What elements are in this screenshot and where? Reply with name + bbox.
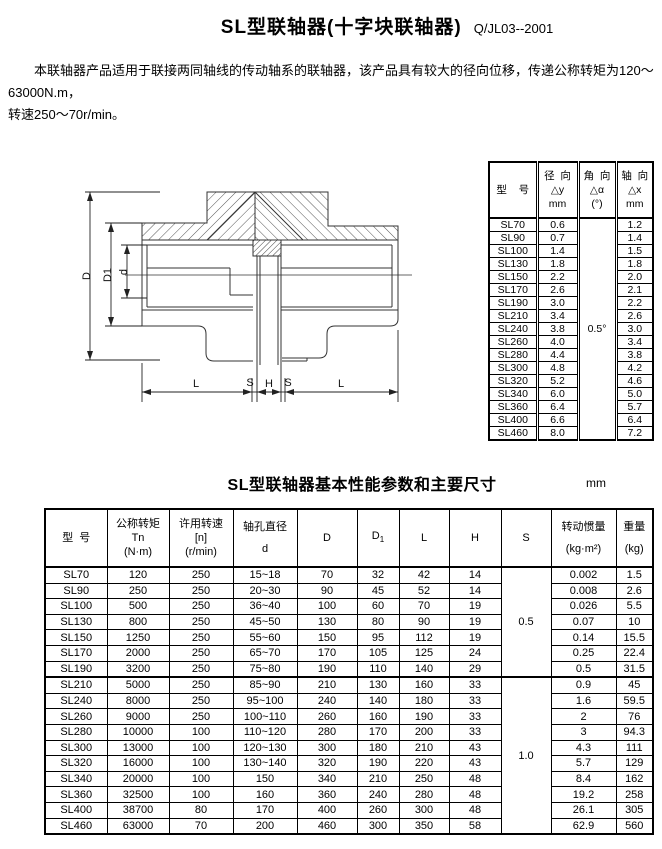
cell-bore: 75~80 [233, 661, 297, 677]
cell-bore: 36~40 [233, 599, 297, 615]
dim-label-S-right: S [284, 377, 291, 389]
cell-model: SL260 [45, 709, 107, 725]
performance-row: SL13080025045~501308090190.0710 [45, 614, 653, 630]
cell-L: 200 [399, 724, 449, 740]
cell-L: 70 [399, 599, 449, 615]
performance-row: SL34020000100150340210250488.4162 [45, 771, 653, 787]
misalignment-row: SL2103.42.6 [489, 310, 653, 323]
cell-L: 112 [399, 630, 449, 646]
cell-speed: 100 [169, 756, 233, 772]
cell-radial: 3.4 [537, 310, 578, 323]
cell-model: SL280 [45, 724, 107, 740]
cell-inertia: 2 [551, 709, 616, 725]
misalignment-table: 型 号 径 向 △y mm 角 向 △α (°) 轴 向 △x mm SL700… [488, 161, 654, 441]
cell-inertia: 3 [551, 724, 616, 740]
col-header-S: S [501, 509, 551, 567]
col-header-H: H [449, 509, 501, 567]
cell-model: SL320 [489, 375, 537, 388]
cell-inertia: 0.002 [551, 567, 616, 583]
performance-row: SL360325001001603602402804819.2258 [45, 787, 653, 803]
cell-torque: 32500 [107, 787, 169, 803]
cell-axial: 3.8 [616, 349, 653, 362]
cell-weight: 129 [616, 756, 653, 772]
cell-H: 19 [449, 630, 501, 646]
misalignment-row: SL2804.43.8 [489, 349, 653, 362]
cell-D1: 130 [357, 677, 399, 693]
cell-speed: 100 [169, 740, 233, 756]
col-header-model2: 型 号 [45, 509, 107, 567]
cell-L: 140 [399, 661, 449, 677]
cell-torque: 16000 [107, 756, 169, 772]
col-header-radial: 径 向 △y mm [537, 162, 578, 218]
cell-inertia: 4.3 [551, 740, 616, 756]
cell-L: 250 [399, 771, 449, 787]
cell-D1: 210 [357, 771, 399, 787]
cell-speed: 250 [169, 583, 233, 599]
cell-radial: 1.8 [537, 258, 578, 271]
misalignment-header-row: 型 号 径 向 △y mm 角 向 △α (°) 轴 向 △x mm [489, 162, 653, 218]
cell-bore: 100~110 [233, 709, 297, 725]
cell-radial: 0.7 [537, 232, 578, 245]
cell-L: 180 [399, 693, 449, 709]
cell-D: 190 [297, 661, 357, 677]
cell-L: 280 [399, 787, 449, 803]
cell-H: 48 [449, 787, 501, 803]
cell-axial: 7.2 [616, 427, 653, 441]
cell-D1: 105 [357, 645, 399, 661]
cell-radial: 1.4 [537, 245, 578, 258]
cell-axial: 3.4 [616, 336, 653, 349]
cell-torque: 13000 [107, 740, 169, 756]
cell-L: 210 [399, 740, 449, 756]
cell-D1: 300 [357, 818, 399, 834]
doc-number: Q/JL03--2001 [474, 21, 554, 36]
cell-L: 90 [399, 614, 449, 630]
cell-H: 58 [449, 818, 501, 834]
misalignment-row: SL700.60.5°1.2 [489, 218, 653, 232]
cell-radial: 0.6 [537, 218, 578, 232]
cell-bore: 170 [233, 802, 297, 818]
cell-model: SL320 [45, 756, 107, 772]
cell-D: 170 [297, 645, 357, 661]
misalignment-row: SL4608.07.2 [489, 427, 653, 441]
cell-speed: 70 [169, 818, 233, 834]
cell-speed: 100 [169, 787, 233, 803]
cell-model: SL300 [489, 362, 537, 375]
cell-radial: 6.4 [537, 401, 578, 414]
cell-speed: 80 [169, 802, 233, 818]
cell-D1: 240 [357, 787, 399, 803]
cell-model: SL300 [45, 740, 107, 756]
cell-S-group: 1.0 [501, 677, 551, 834]
cell-weight: 5.5 [616, 599, 653, 615]
misalignment-row: SL1702.62.1 [489, 284, 653, 297]
cell-bore: 150 [233, 771, 297, 787]
col-header-D: D [297, 509, 357, 567]
cell-inertia: 62.9 [551, 818, 616, 834]
cell-bore: 130~140 [233, 756, 297, 772]
performance-row: SL10050025036~401006070190.0265.5 [45, 599, 653, 615]
cell-H: 33 [449, 677, 501, 693]
misalignment-row: SL3004.84.2 [489, 362, 653, 375]
performance-header-row: 型 号 公称转矩 Tn (N·m) 许用转速 [n] (r/min) 轴孔直径 … [45, 509, 653, 567]
cell-model: SL130 [45, 614, 107, 630]
cell-model: SL400 [489, 414, 537, 427]
cell-axial: 2.2 [616, 297, 653, 310]
cell-axial: 4.6 [616, 375, 653, 388]
cell-model: SL100 [45, 599, 107, 615]
cell-weight: 59.5 [616, 693, 653, 709]
cell-torque: 2000 [107, 645, 169, 661]
cell-model: SL90 [489, 232, 537, 245]
dim-label-L-right: L [338, 378, 344, 390]
cell-H: 33 [449, 709, 501, 725]
cell-model: SL360 [489, 401, 537, 414]
cell-D: 280 [297, 724, 357, 740]
cell-D1: 170 [357, 724, 399, 740]
section-hatched-bodies [142, 192, 398, 256]
cell-H: 33 [449, 693, 501, 709]
cell-model: SL280 [489, 349, 537, 362]
cell-D: 260 [297, 709, 357, 725]
cell-bore: 110~120 [233, 724, 297, 740]
cell-torque: 20000 [107, 771, 169, 787]
cell-inertia: 0.008 [551, 583, 616, 599]
cell-model: SL190 [45, 661, 107, 677]
cell-weight: 111 [616, 740, 653, 756]
cell-bore: 55~60 [233, 630, 297, 646]
performance-row: SL150125025055~6015095112190.1415.5 [45, 630, 653, 646]
cell-torque: 120 [107, 567, 169, 583]
cell-model: SL340 [489, 388, 537, 401]
cell-D1: 180 [357, 740, 399, 756]
cell-L: 190 [399, 709, 449, 725]
cell-inertia: 8.4 [551, 771, 616, 787]
cell-axial: 2.0 [616, 271, 653, 284]
cell-D: 240 [297, 693, 357, 709]
cell-inertia: 0.14 [551, 630, 616, 646]
cell-D1: 260 [357, 802, 399, 818]
cell-D1: 45 [357, 583, 399, 599]
cell-S-group: 0.5 [501, 567, 551, 677]
misalignment-row: SL1502.22.0 [489, 271, 653, 284]
cell-inertia: 19.2 [551, 787, 616, 803]
cell-H: 19 [449, 599, 501, 615]
cell-D: 360 [297, 787, 357, 803]
cell-model: SL70 [45, 567, 107, 583]
cell-D1: 95 [357, 630, 399, 646]
cell-inertia: 0.25 [551, 645, 616, 661]
cell-axial: 5.7 [616, 401, 653, 414]
cell-model: SL90 [45, 583, 107, 599]
title-row: SL型联轴器(十字块联轴器)Q/JL03--2001 [0, 12, 662, 39]
cell-D: 70 [297, 567, 357, 583]
cell-torque: 250 [107, 583, 169, 599]
col-header-inertia: 转动惯量 (kg·m²) [551, 509, 616, 567]
cell-torque: 38700 [107, 802, 169, 818]
cell-speed: 100 [169, 771, 233, 787]
misalignment-row: SL900.71.4 [489, 232, 653, 245]
dim-label-L-left: L [193, 378, 199, 390]
cell-speed: 250 [169, 661, 233, 677]
cell-D: 130 [297, 614, 357, 630]
cell-D: 460 [297, 818, 357, 834]
cell-inertia: 1.6 [551, 693, 616, 709]
cell-L: 220 [399, 756, 449, 772]
performance-row: SL40038700801704002603004826.1305 [45, 802, 653, 818]
cell-radial: 4.0 [537, 336, 578, 349]
cell-torque: 5000 [107, 677, 169, 693]
cell-bore: 65~70 [233, 645, 297, 661]
cell-torque: 800 [107, 614, 169, 630]
cell-weight: 76 [616, 709, 653, 725]
cell-L: 160 [399, 677, 449, 693]
cell-torque: 500 [107, 599, 169, 615]
cell-axial: 1.4 [616, 232, 653, 245]
cell-H: 48 [449, 802, 501, 818]
cell-model: SL170 [489, 284, 537, 297]
performance-row: SL170200025065~70170105125240.2522.4 [45, 645, 653, 661]
cell-model: SL210 [489, 310, 537, 323]
cell-model: SL70 [489, 218, 537, 232]
cell-D: 340 [297, 771, 357, 787]
cell-H: 19 [449, 614, 501, 630]
cell-radial: 2.6 [537, 284, 578, 297]
cell-torque: 10000 [107, 724, 169, 740]
dimension-labels: D D1 d L S H S L [81, 268, 344, 390]
intro-line: 本联轴器产品适用于联接两同轴线的传动轴系的联轴器，该产品具有较大的径向位移，传递… [8, 60, 660, 104]
cell-speed: 100 [169, 724, 233, 740]
cell-inertia: 5.7 [551, 756, 616, 772]
misalignment-row: SL1301.81.8 [489, 258, 653, 271]
col-header-D1: D1 [357, 509, 399, 567]
cell-model: SL150 [489, 271, 537, 284]
cell-H: 43 [449, 756, 501, 772]
cell-H: 48 [449, 771, 501, 787]
cell-H: 33 [449, 724, 501, 740]
cell-torque: 3200 [107, 661, 169, 677]
cell-D: 210 [297, 677, 357, 693]
cell-radial: 3.0 [537, 297, 578, 310]
cell-D1: 110 [357, 661, 399, 677]
cell-weight: 162 [616, 771, 653, 787]
cell-model: SL460 [45, 818, 107, 834]
cell-speed: 250 [169, 709, 233, 725]
performance-table: 型 号 公称转矩 Tn (N·m) 许用转速 [n] (r/min) 轴孔直径 … [44, 508, 654, 835]
cell-torque: 8000 [107, 693, 169, 709]
cell-model: SL400 [45, 802, 107, 818]
cell-angular: 0.5° [578, 218, 616, 440]
cell-axial: 1.2 [616, 218, 653, 232]
misalignment-row: SL1001.41.5 [489, 245, 653, 258]
cell-torque: 9000 [107, 709, 169, 725]
cell-inertia: 0.9 [551, 677, 616, 693]
cell-model: SL240 [489, 323, 537, 336]
performance-row: SL30013000100120~130300180210434.3111 [45, 740, 653, 756]
cell-D: 400 [297, 802, 357, 818]
cell-D1: 60 [357, 599, 399, 615]
intro-line: 转速250～70r/min。 [8, 104, 660, 126]
coupling-drawing-svg: D D1 d L S H S L [50, 150, 484, 472]
intro-paragraph: 本联轴器产品适用于联接两同轴线的传动轴系的联轴器，该产品具有较大的径向位移，传递… [8, 60, 660, 126]
cell-model: SL360 [45, 787, 107, 803]
cell-speed: 250 [169, 599, 233, 615]
cell-bore: 15~18 [233, 567, 297, 583]
dim-label-H: H [265, 378, 273, 390]
cell-axial: 5.0 [616, 388, 653, 401]
cell-speed: 250 [169, 567, 233, 583]
cell-L: 350 [399, 818, 449, 834]
cell-weight: 560 [616, 818, 653, 834]
cell-inertia: 0.5 [551, 661, 616, 677]
cell-weight: 22.4 [616, 645, 653, 661]
cell-weight: 15.5 [616, 630, 653, 646]
cell-weight: 94.3 [616, 724, 653, 740]
unit-note: mm [586, 476, 606, 490]
cell-radial: 6.0 [537, 388, 578, 401]
cell-radial: 3.8 [537, 323, 578, 336]
cell-bore: 85~90 [233, 677, 297, 693]
page-title: SL型联轴器(十字块联轴器) [221, 17, 462, 38]
coupling-section-drawing: D D1 d L S H S L [50, 150, 484, 472]
cell-weight: 2.6 [616, 583, 653, 599]
cell-L: 42 [399, 567, 449, 583]
cell-bore: 45~50 [233, 614, 297, 630]
main-table-caption: SL型联轴器基本性能参数和主要尺寸 [0, 471, 662, 495]
performance-table-body: SL7012025015~18703242140.50.0021.5SL9025… [45, 567, 653, 834]
cell-model: SL190 [489, 297, 537, 310]
cell-radial: 8.0 [537, 427, 578, 441]
dim-label-D1: D1 [102, 268, 114, 282]
col-header-torque: 公称转矩 Tn (N·m) [107, 509, 169, 567]
performance-row: SL46063000702004603003505862.9560 [45, 818, 653, 834]
dim-label-S-left: S [246, 377, 253, 389]
misalignment-row: SL2604.03.4 [489, 336, 653, 349]
cell-weight: 1.5 [616, 567, 653, 583]
cell-model: SL100 [489, 245, 537, 258]
cell-axial: 1.5 [616, 245, 653, 258]
cell-model: SL210 [45, 677, 107, 693]
cell-radial: 6.6 [537, 414, 578, 427]
cell-H: 14 [449, 583, 501, 599]
performance-row: SL32016000100130~140320190220435.7129 [45, 756, 653, 772]
cell-H: 43 [449, 740, 501, 756]
cell-model: SL240 [45, 693, 107, 709]
cell-torque: 63000 [107, 818, 169, 834]
cell-bore: 95~100 [233, 693, 297, 709]
cell-D: 300 [297, 740, 357, 756]
cell-speed: 250 [169, 630, 233, 646]
cell-L: 125 [399, 645, 449, 661]
cell-model: SL340 [45, 771, 107, 787]
col-header-bore: 轴孔直径 d [233, 509, 297, 567]
cell-axial: 1.8 [616, 258, 653, 271]
cell-inertia: 0.07 [551, 614, 616, 630]
cell-D: 90 [297, 583, 357, 599]
cell-radial: 5.2 [537, 375, 578, 388]
cell-axial: 3.0 [616, 323, 653, 336]
col-header-angular: 角 向 △α (°) [578, 162, 616, 218]
cell-axial: 2.6 [616, 310, 653, 323]
performance-row: SL7012025015~18703242140.50.0021.5 [45, 567, 653, 583]
cell-H: 29 [449, 661, 501, 677]
col-header-axial: 轴 向 △x mm [616, 162, 653, 218]
cell-model: SL170 [45, 645, 107, 661]
dim-label-d: d [118, 269, 130, 275]
cell-bore: 200 [233, 818, 297, 834]
cell-bore: 120~130 [233, 740, 297, 756]
cell-D: 320 [297, 756, 357, 772]
cell-D: 150 [297, 630, 357, 646]
misalignment-row: SL1903.02.2 [489, 297, 653, 310]
col-header-weight: 重量 (kg) [616, 509, 653, 567]
misalignment-table-body: SL700.60.5°1.2SL900.71.4SL1001.41.5SL130… [489, 218, 653, 440]
cell-D1: 140 [357, 693, 399, 709]
cell-weight: 31.5 [616, 661, 653, 677]
misalignment-row: SL2403.83.0 [489, 323, 653, 336]
cell-radial: 4.4 [537, 349, 578, 362]
cell-D1: 160 [357, 709, 399, 725]
cell-radial: 2.2 [537, 271, 578, 284]
cell-H: 14 [449, 567, 501, 583]
cell-axial: 2.1 [616, 284, 653, 297]
performance-row: SL28010000100110~12028017020033394.3 [45, 724, 653, 740]
cell-weight: 10 [616, 614, 653, 630]
cell-model: SL460 [489, 427, 537, 441]
misalignment-row: SL3406.05.0 [489, 388, 653, 401]
cell-D1: 80 [357, 614, 399, 630]
cell-bore: 20~30 [233, 583, 297, 599]
performance-row: SL210500025085~90210130160331.00.945 [45, 677, 653, 693]
cell-D: 100 [297, 599, 357, 615]
cell-D1: 32 [357, 567, 399, 583]
cell-model: SL150 [45, 630, 107, 646]
cell-speed: 250 [169, 677, 233, 693]
cell-model: SL130 [489, 258, 537, 271]
cell-axial: 4.2 [616, 362, 653, 375]
cell-L: 52 [399, 583, 449, 599]
col-header-speed: 许用转速 [n] (r/min) [169, 509, 233, 567]
dim-label-D: D [81, 272, 93, 280]
cell-weight: 45 [616, 677, 653, 693]
performance-row: SL190320025075~80190110140290.531.5 [45, 661, 653, 677]
cell-speed: 250 [169, 693, 233, 709]
performance-row: SL9025025020~30904552140.0082.6 [45, 583, 653, 599]
cell-axial: 6.4 [616, 414, 653, 427]
cell-weight: 258 [616, 787, 653, 803]
cell-H: 24 [449, 645, 501, 661]
col-header-L: L [399, 509, 449, 567]
cell-D1: 190 [357, 756, 399, 772]
cell-weight: 305 [616, 802, 653, 818]
cell-radial: 4.8 [537, 362, 578, 375]
performance-row: SL240800025095~100240140180331.659.5 [45, 693, 653, 709]
cell-inertia: 0.026 [551, 599, 616, 615]
cell-speed: 250 [169, 614, 233, 630]
cell-L: 300 [399, 802, 449, 818]
performance-row: SL2609000250100~11026016019033276 [45, 709, 653, 725]
cell-bore: 160 [233, 787, 297, 803]
cell-torque: 1250 [107, 630, 169, 646]
cell-speed: 250 [169, 645, 233, 661]
cell-inertia: 26.1 [551, 802, 616, 818]
col-header-model: 型 号 [489, 162, 537, 218]
misalignment-row: SL3205.24.6 [489, 375, 653, 388]
cell-model: SL260 [489, 336, 537, 349]
misalignment-row: SL4006.66.4 [489, 414, 653, 427]
misalignment-row: SL3606.45.7 [489, 401, 653, 414]
